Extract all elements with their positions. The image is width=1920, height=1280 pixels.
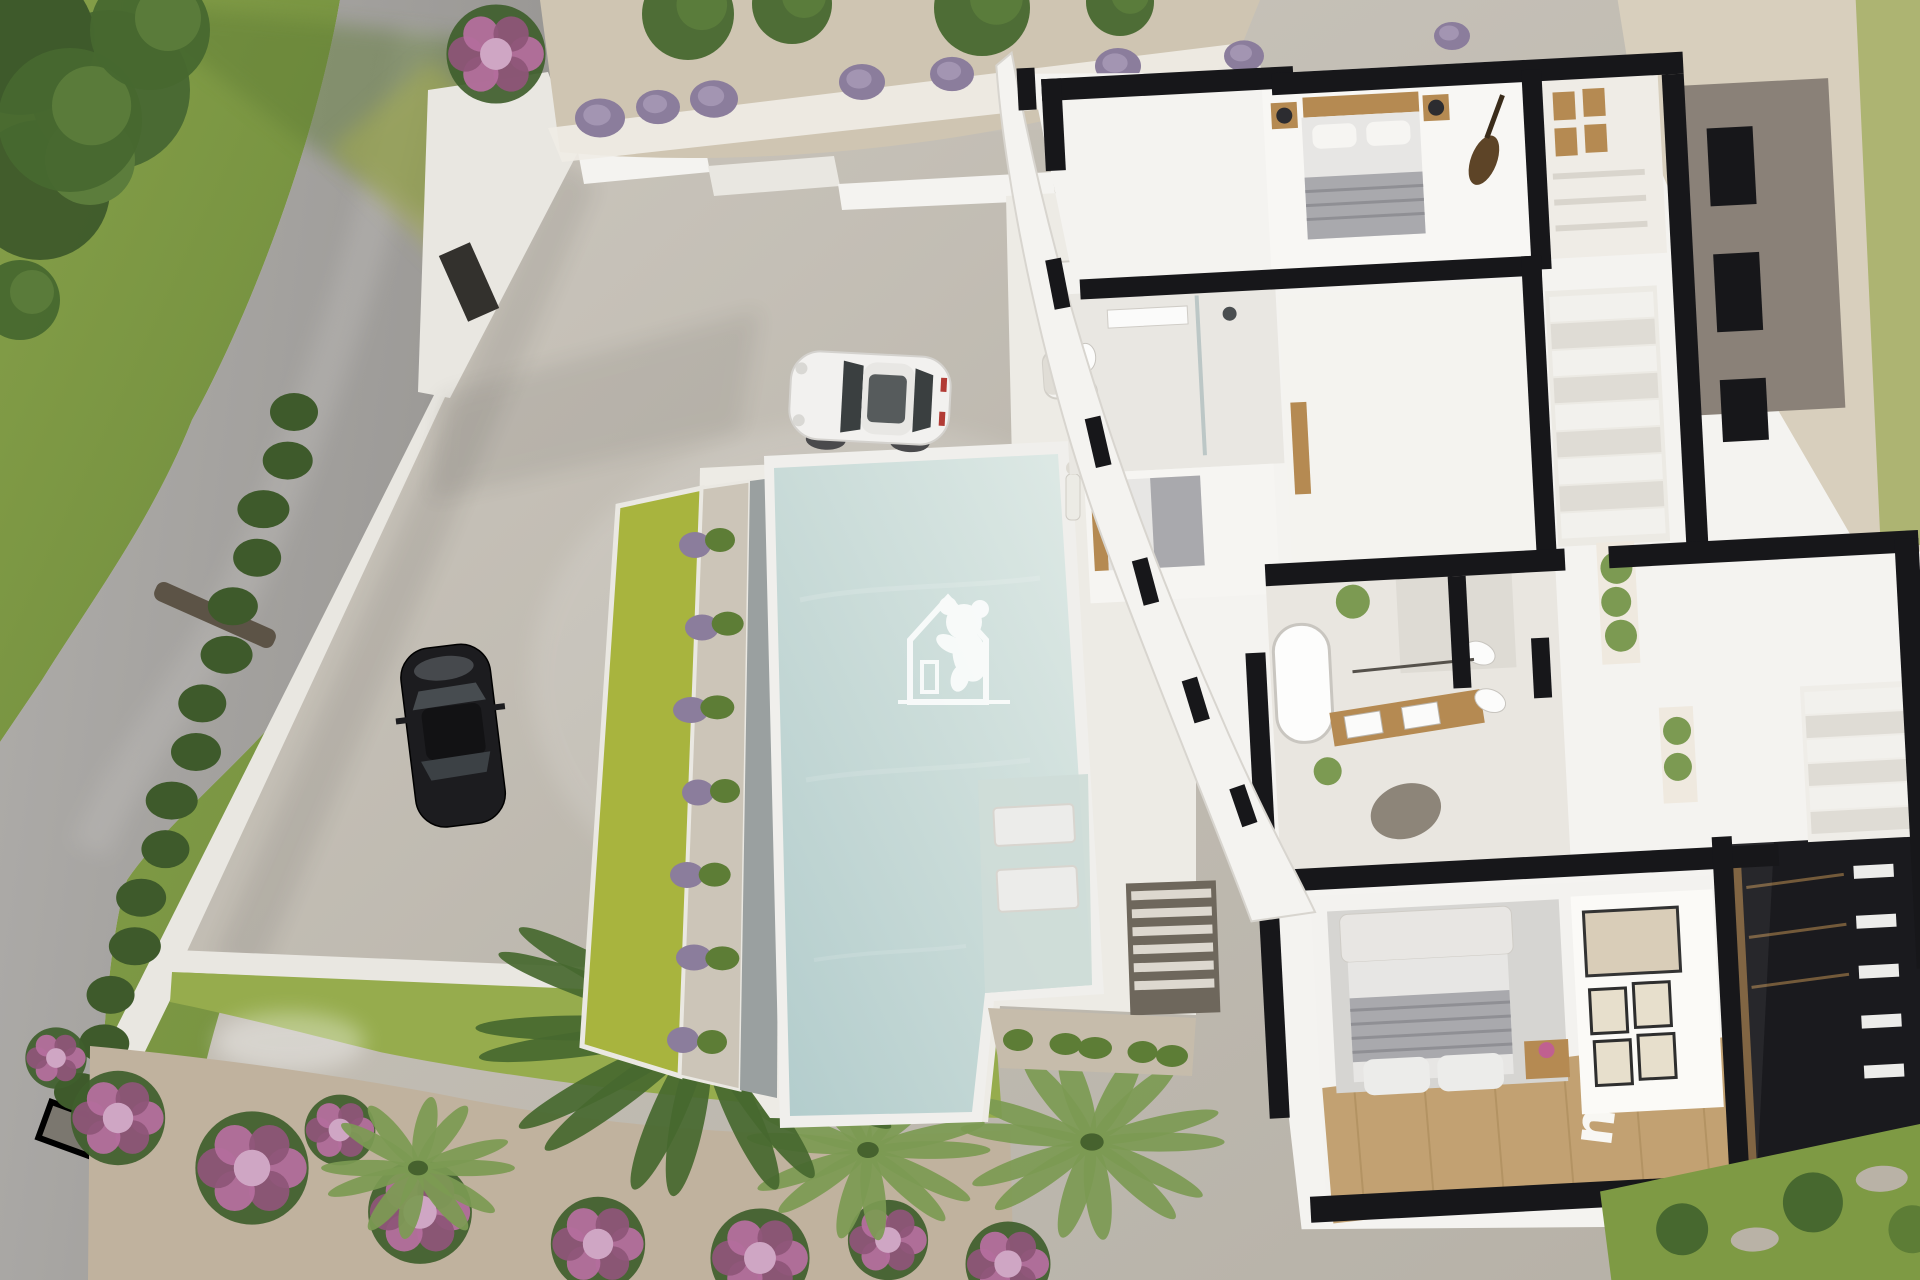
cypress-shrub <box>263 442 313 480</box>
cypress-shrub <box>208 587 258 625</box>
cypress-shrub <box>201 636 253 674</box>
patio-opening <box>1720 378 1769 442</box>
tufted-headboard <box>1339 906 1513 963</box>
cypress-shrub <box>146 782 198 820</box>
patio-slab <box>1678 78 1845 415</box>
green-bush <box>699 863 731 887</box>
flower-cluster <box>71 1071 165 1165</box>
white-sports-car <box>787 350 952 456</box>
purple-shrub <box>667 1027 699 1053</box>
palm-crown <box>1080 1133 1103 1150</box>
cypress-shrub <box>233 539 281 577</box>
car-rear-window <box>912 368 933 433</box>
wardrobe-shelf-box <box>1584 124 1607 153</box>
lavender-bush-highlight <box>937 62 961 80</box>
green-bush <box>1050 1033 1082 1055</box>
wardrobe-shelf-box <box>1582 88 1605 117</box>
sun-mattress <box>996 866 1078 912</box>
patio-opening <box>1707 126 1757 206</box>
car-windshield <box>840 361 864 434</box>
clothes-stack <box>1861 1014 1902 1029</box>
hallway-floor <box>1278 282 1537 564</box>
lavender-bush-highlight <box>583 105 611 126</box>
cypress-shrub <box>270 393 318 431</box>
louvered-pergola <box>1126 880 1221 1015</box>
flower-bloom <box>744 1242 776 1274</box>
bed-pillow <box>1363 1056 1431 1095</box>
lavender-bush-highlight <box>1230 45 1252 62</box>
master-bathroom <box>1266 569 1571 876</box>
wall-segment <box>1531 637 1552 698</box>
gallery-wall <box>1571 889 1724 1114</box>
green-bush <box>1078 1037 1112 1059</box>
art-frame <box>1638 1033 1676 1079</box>
lavender-bush-highlight <box>1439 25 1459 40</box>
cypress-shrub <box>171 733 221 771</box>
car-taillight <box>939 412 946 426</box>
aerial-render: m <box>0 0 1920 1280</box>
green-bush <box>697 1030 727 1054</box>
car-roof <box>421 702 487 761</box>
shower-column <box>1066 474 1080 520</box>
stairs-main-steps <box>1549 292 1666 539</box>
render-stage: m <box>0 0 1920 1280</box>
flower-cluster <box>195 1111 308 1224</box>
green-bush <box>700 695 734 719</box>
bed-pillow <box>1437 1052 1505 1091</box>
flower-bloom <box>234 1150 270 1186</box>
cypress-shrub <box>87 976 135 1014</box>
olive-canopy <box>10 270 54 314</box>
lavender-bush-highlight <box>643 95 667 113</box>
cypress-shrub <box>109 927 161 965</box>
cypress-shrub <box>141 830 189 868</box>
art-frame <box>1589 988 1627 1034</box>
flower-bloom <box>583 1229 613 1259</box>
palm-crown <box>857 1142 879 1158</box>
green-bush <box>1003 1029 1033 1051</box>
cypress-shrub <box>178 684 226 722</box>
clothes-stack <box>1859 964 1900 979</box>
flower-bloom <box>994 1250 1021 1277</box>
art-frame-large <box>1583 907 1680 976</box>
cypress-shrub <box>237 490 289 528</box>
lower-staircase <box>1800 680 1920 842</box>
green-bush <box>705 946 739 970</box>
lavender-bush-highlight <box>1102 53 1127 72</box>
palm-crown <box>408 1161 428 1176</box>
flower-bloom <box>480 38 512 70</box>
bed-pillow <box>1312 123 1357 149</box>
art-frame <box>1594 1040 1632 1086</box>
flower-bloom <box>46 1048 66 1068</box>
sun-mattress <box>993 804 1075 846</box>
lavender-bush-highlight <box>846 69 871 88</box>
patio-opening <box>1713 252 1763 332</box>
bed-blanket <box>1150 476 1205 568</box>
wardrobe-shelf-box <box>1554 127 1577 156</box>
purple-shrub <box>682 780 714 806</box>
cypress-shrub <box>116 879 166 917</box>
green-bush <box>1128 1041 1158 1063</box>
flower-cluster <box>446 4 545 103</box>
fitted-wardrobe <box>1529 63 1667 259</box>
car-sunroof <box>867 374 907 424</box>
wall-stub <box>1016 68 1036 111</box>
flower-cluster <box>25 1027 86 1088</box>
bed-pillow <box>1366 120 1411 146</box>
green-bush <box>705 528 735 552</box>
freestanding-bathtub <box>1272 623 1334 744</box>
green-bush <box>1156 1045 1188 1067</box>
pool-planters <box>582 477 780 1098</box>
stone-patio <box>1678 78 1847 443</box>
green-bush <box>710 779 740 803</box>
clothes-stack <box>1864 1063 1905 1078</box>
lavender-bush-highlight <box>698 86 724 106</box>
bath-sink-counter <box>1107 306 1188 328</box>
main-staircase <box>1545 285 1670 547</box>
wardrobe-shelf-box <box>1552 91 1575 120</box>
green-bush <box>712 612 744 636</box>
clothes-stack <box>1856 914 1897 929</box>
car-taillight <box>940 378 947 392</box>
master-bedroom: m <box>1310 875 1741 1224</box>
clothes-stack <box>1853 864 1894 879</box>
art-frame <box>1633 982 1671 1028</box>
flower-bloom <box>103 1103 133 1133</box>
